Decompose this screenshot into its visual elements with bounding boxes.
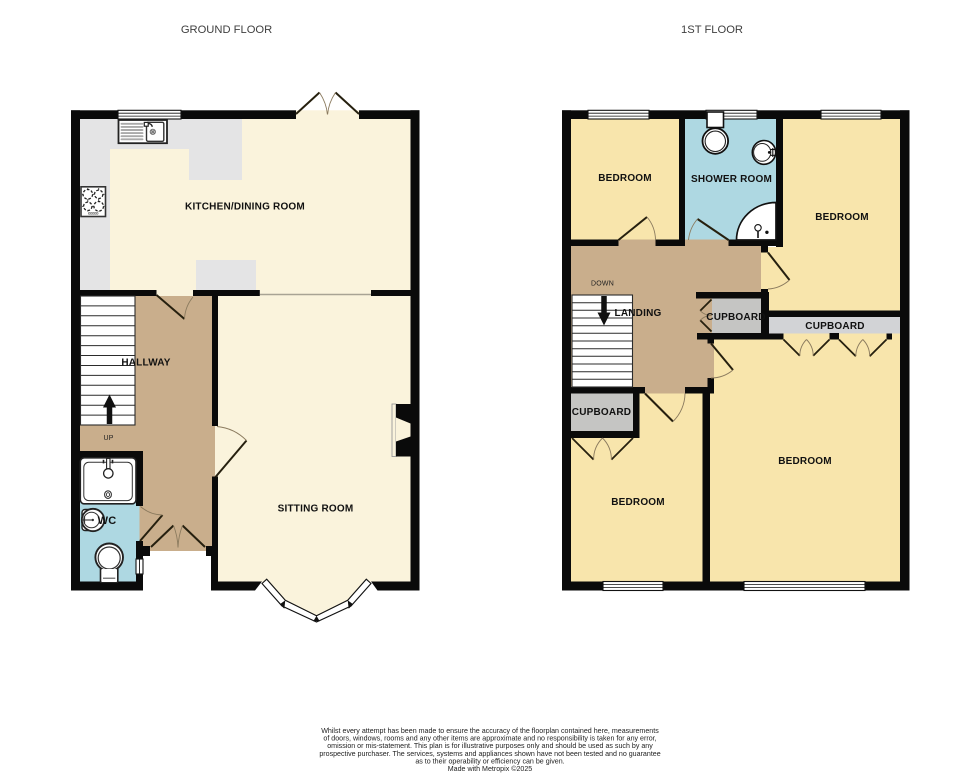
svg-text:BEDROOM: BEDROOM xyxy=(598,173,652,184)
svg-text:BEDROOM: BEDROOM xyxy=(778,456,832,467)
svg-text:DOWN: DOWN xyxy=(591,281,614,288)
svg-text:BEDROOM: BEDROOM xyxy=(815,212,869,223)
svg-text:WC: WC xyxy=(98,515,117,527)
svg-text:KITCHEN/DINING ROOM: KITCHEN/DINING ROOM xyxy=(185,202,305,213)
svg-text:CUPBOARD: CUPBOARD xyxy=(706,312,765,323)
svg-text:CUPBOARD: CUPBOARD xyxy=(805,321,864,332)
svg-text:1ST FLOOR: 1ST FLOOR xyxy=(681,24,743,36)
svg-text:SITTING ROOM: SITTING ROOM xyxy=(278,503,354,514)
svg-text:BEDROOM: BEDROOM xyxy=(611,497,665,508)
svg-text:HALLWAY: HALLWAY xyxy=(121,357,170,368)
svg-text:SHOWER ROOM: SHOWER ROOM xyxy=(691,174,772,185)
svg-text:Made with Metropix ©2025: Made with Metropix ©2025 xyxy=(448,765,533,773)
svg-text:LANDING: LANDING xyxy=(615,308,662,319)
svg-text:CUPBOARD: CUPBOARD xyxy=(572,407,631,418)
svg-text:GROUND FLOOR: GROUND FLOOR xyxy=(181,24,272,36)
svg-text:UP: UP xyxy=(103,435,113,442)
